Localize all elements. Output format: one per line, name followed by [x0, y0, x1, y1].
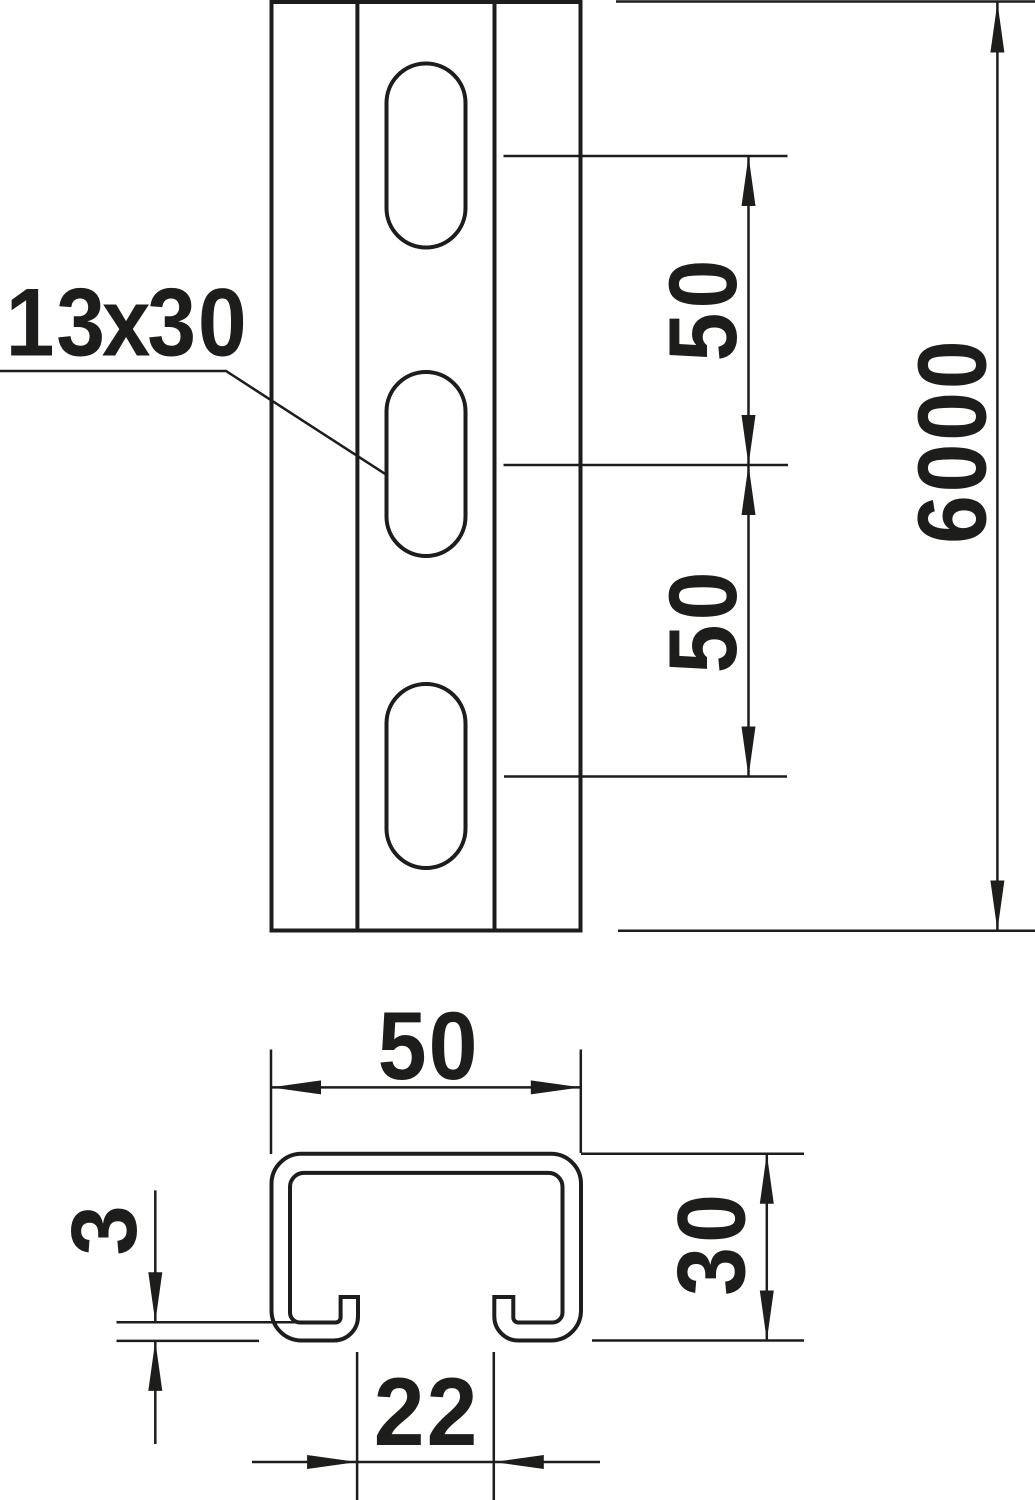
svg-text:x: x	[102, 268, 151, 377]
svg-text:5: 5	[648, 625, 757, 674]
svg-text:3: 3	[147, 268, 196, 377]
svg-text:0: 0	[648, 572, 757, 621]
svg-text:0: 0	[897, 340, 1006, 389]
svg-text:0: 0	[648, 260, 757, 309]
svg-text:0: 0	[429, 991, 478, 1100]
svg-text:0: 0	[897, 444, 1006, 493]
svg-text:3: 3	[56, 268, 105, 377]
svg-text:5: 5	[648, 313, 757, 362]
svg-text:2: 2	[427, 1358, 478, 1466]
svg-text:3: 3	[656, 1247, 765, 1296]
svg-text:0: 0	[656, 1194, 765, 1243]
svg-text:0: 0	[198, 268, 247, 377]
svg-text:0: 0	[897, 392, 1006, 441]
svg-text:2: 2	[374, 1358, 425, 1466]
svg-text:6: 6	[897, 495, 1006, 544]
svg-text:1: 1	[6, 268, 55, 377]
svg-text:5: 5	[378, 991, 427, 1100]
svg-text:3: 3	[53, 1205, 156, 1255]
